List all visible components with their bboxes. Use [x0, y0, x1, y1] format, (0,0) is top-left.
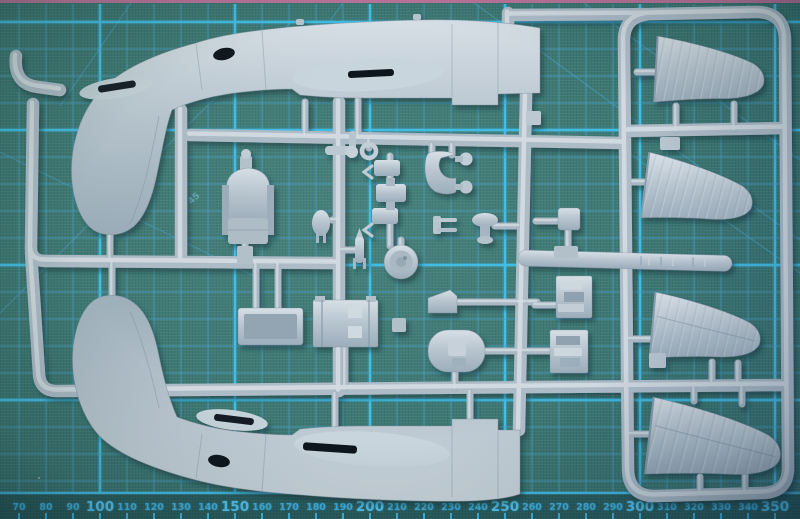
pilot-seat [222, 149, 274, 264]
cockpit-floor-tray [238, 308, 303, 345]
seat-bracket [237, 246, 253, 264]
cut-gate-tab [649, 353, 666, 368]
plastic-sprue [0, 0, 800, 519]
cockpit-bulkhead [313, 296, 406, 347]
fork-fitting [433, 216, 457, 234]
fork-clip-1 [364, 166, 372, 178]
oval-access-panel [428, 330, 485, 372]
gate-nub [413, 14, 421, 20]
engine-block-upper [556, 276, 592, 318]
fork-clip-2 [364, 224, 372, 236]
wing-panel-3 [650, 292, 764, 367]
nose-block [526, 111, 541, 125]
photo-sprue-on-cutting-mat: 7080901001101201301401501601701801902002… [0, 0, 800, 519]
wing-panel-4 [645, 397, 785, 487]
drop-bomb [312, 210, 330, 243]
engine-disc [384, 245, 418, 279]
marked-runner-bar [518, 250, 732, 272]
wing-panel-1 [654, 36, 766, 108]
cylinder-blocks [372, 160, 406, 224]
cowling-horseshoe [425, 151, 473, 194]
engine-block-lower [550, 330, 588, 373]
small-block [392, 318, 406, 332]
wing-panel-2 [641, 152, 757, 231]
cut-gate-tab [660, 137, 680, 150]
angular-fitting [428, 290, 457, 313]
gate-nub [296, 19, 304, 25]
